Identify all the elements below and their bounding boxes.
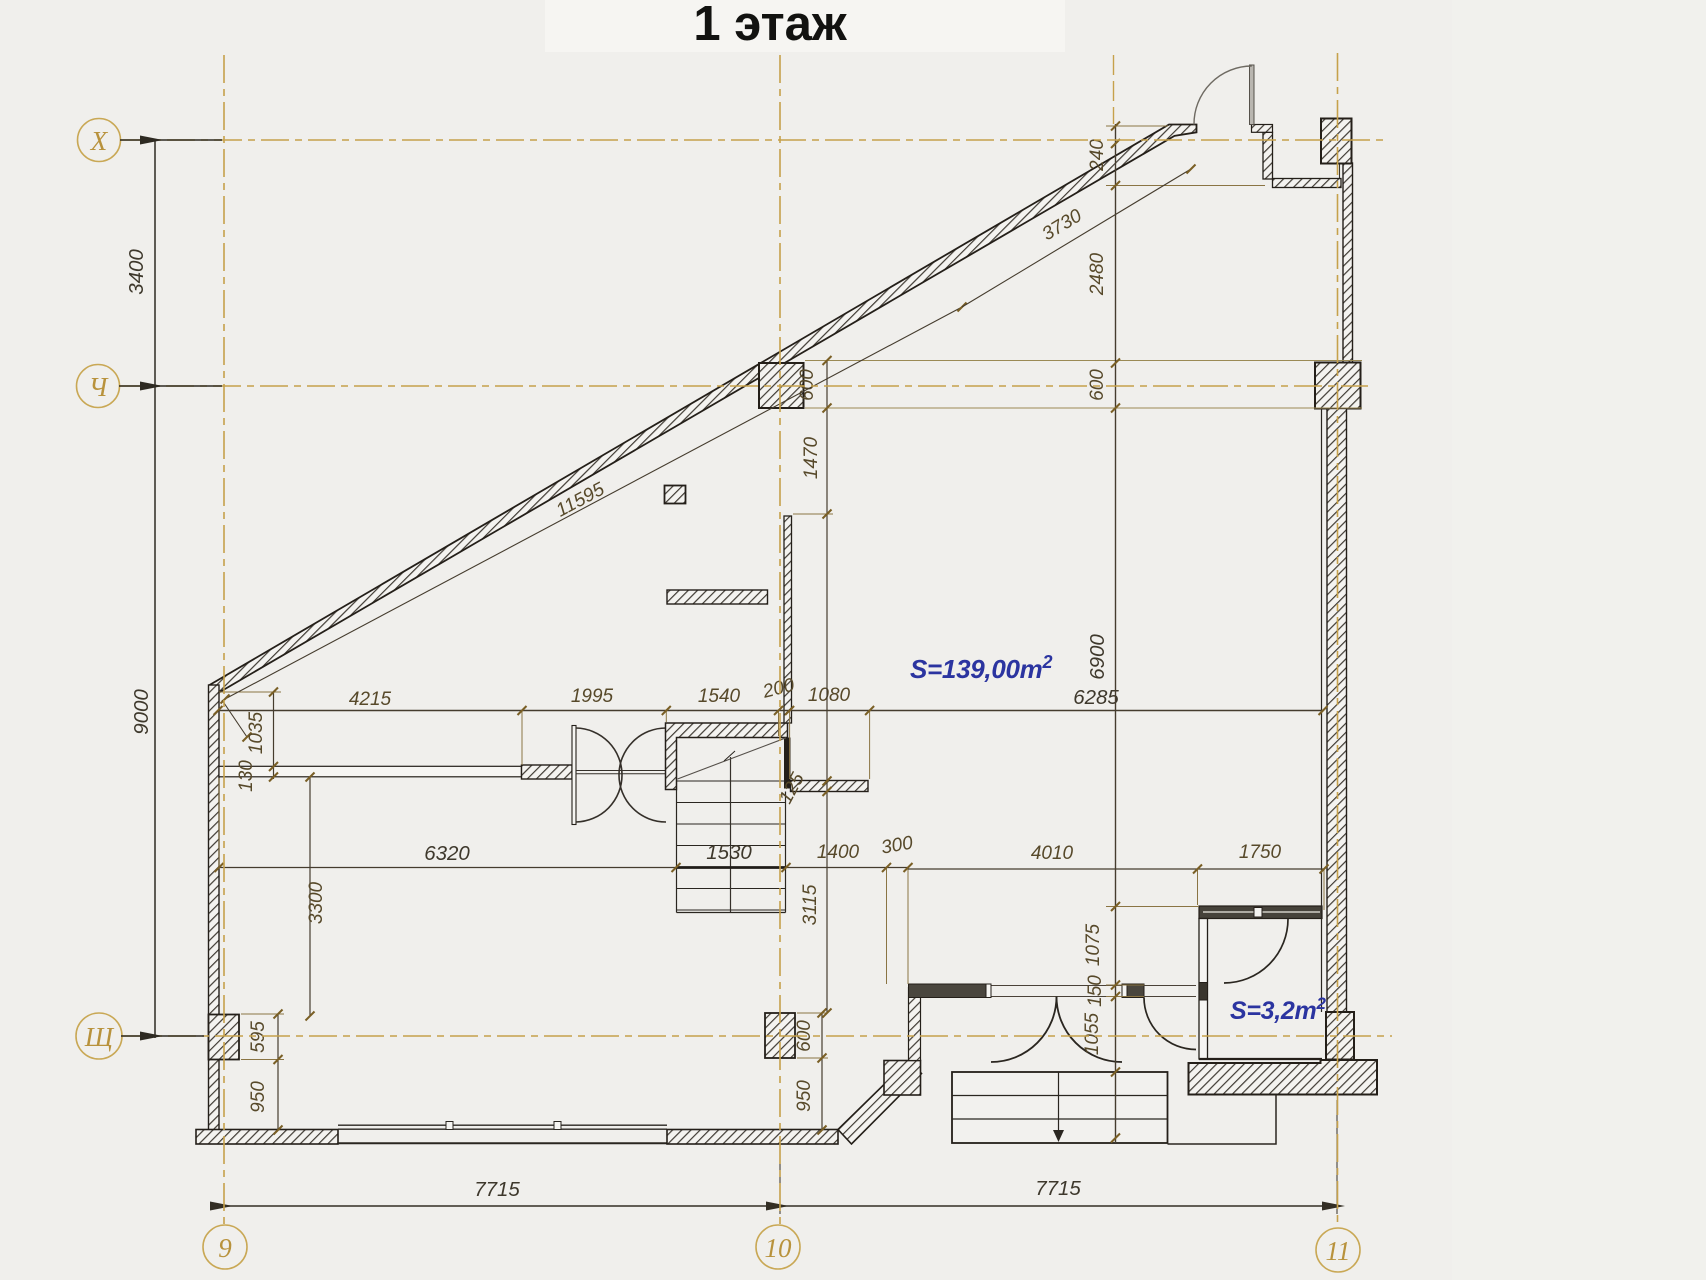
svg-text:1530: 1530	[706, 841, 752, 864]
svg-text:6900: 6900	[1086, 634, 1109, 680]
svg-text:9000: 9000	[130, 689, 153, 735]
svg-text:4010: 4010	[1031, 843, 1074, 864]
svg-text:3400: 3400	[125, 249, 148, 295]
svg-text:9: 9	[218, 1233, 232, 1263]
svg-text:950: 950	[794, 1080, 815, 1112]
svg-text:240: 240	[1087, 139, 1108, 172]
svg-text:Х: Х	[90, 126, 109, 156]
svg-text:10: 10	[765, 1233, 793, 1263]
svg-text:S=3,2m2: S=3,2m2	[1230, 994, 1326, 1025]
svg-text:1035: 1035	[246, 711, 267, 754]
svg-text:2480: 2480	[1087, 252, 1108, 296]
svg-text:950: 950	[248, 1081, 269, 1113]
svg-text:Щ: Щ	[84, 1022, 115, 1052]
svg-text:4215: 4215	[349, 689, 392, 710]
svg-text:1 этаж: 1 этаж	[693, 0, 848, 51]
svg-text:7715: 7715	[474, 1178, 520, 1201]
svg-text:150: 150	[1085, 975, 1106, 1007]
svg-text:1470: 1470	[801, 436, 822, 479]
svg-text:1540: 1540	[698, 686, 741, 707]
svg-text:1055: 1055	[1082, 1012, 1103, 1055]
svg-text:6285: 6285	[1073, 686, 1119, 709]
svg-text:3300: 3300	[306, 881, 327, 924]
svg-text:600: 600	[1087, 369, 1108, 401]
svg-text:130: 130	[236, 760, 257, 792]
svg-text:Ч: Ч	[89, 372, 109, 402]
svg-text:1995: 1995	[571, 686, 614, 707]
svg-text:1075: 1075	[1083, 923, 1104, 966]
svg-text:7715: 7715	[1035, 1177, 1081, 1200]
svg-text:1080: 1080	[808, 685, 851, 706]
svg-text:3115: 3115	[800, 884, 821, 925]
svg-text:11: 11	[1326, 1236, 1351, 1266]
svg-text:S=139,00m2: S=139,00m2	[910, 652, 1052, 684]
svg-text:1400: 1400	[817, 842, 860, 863]
svg-text:1750: 1750	[1239, 842, 1282, 863]
svg-text:6320: 6320	[424, 842, 470, 865]
